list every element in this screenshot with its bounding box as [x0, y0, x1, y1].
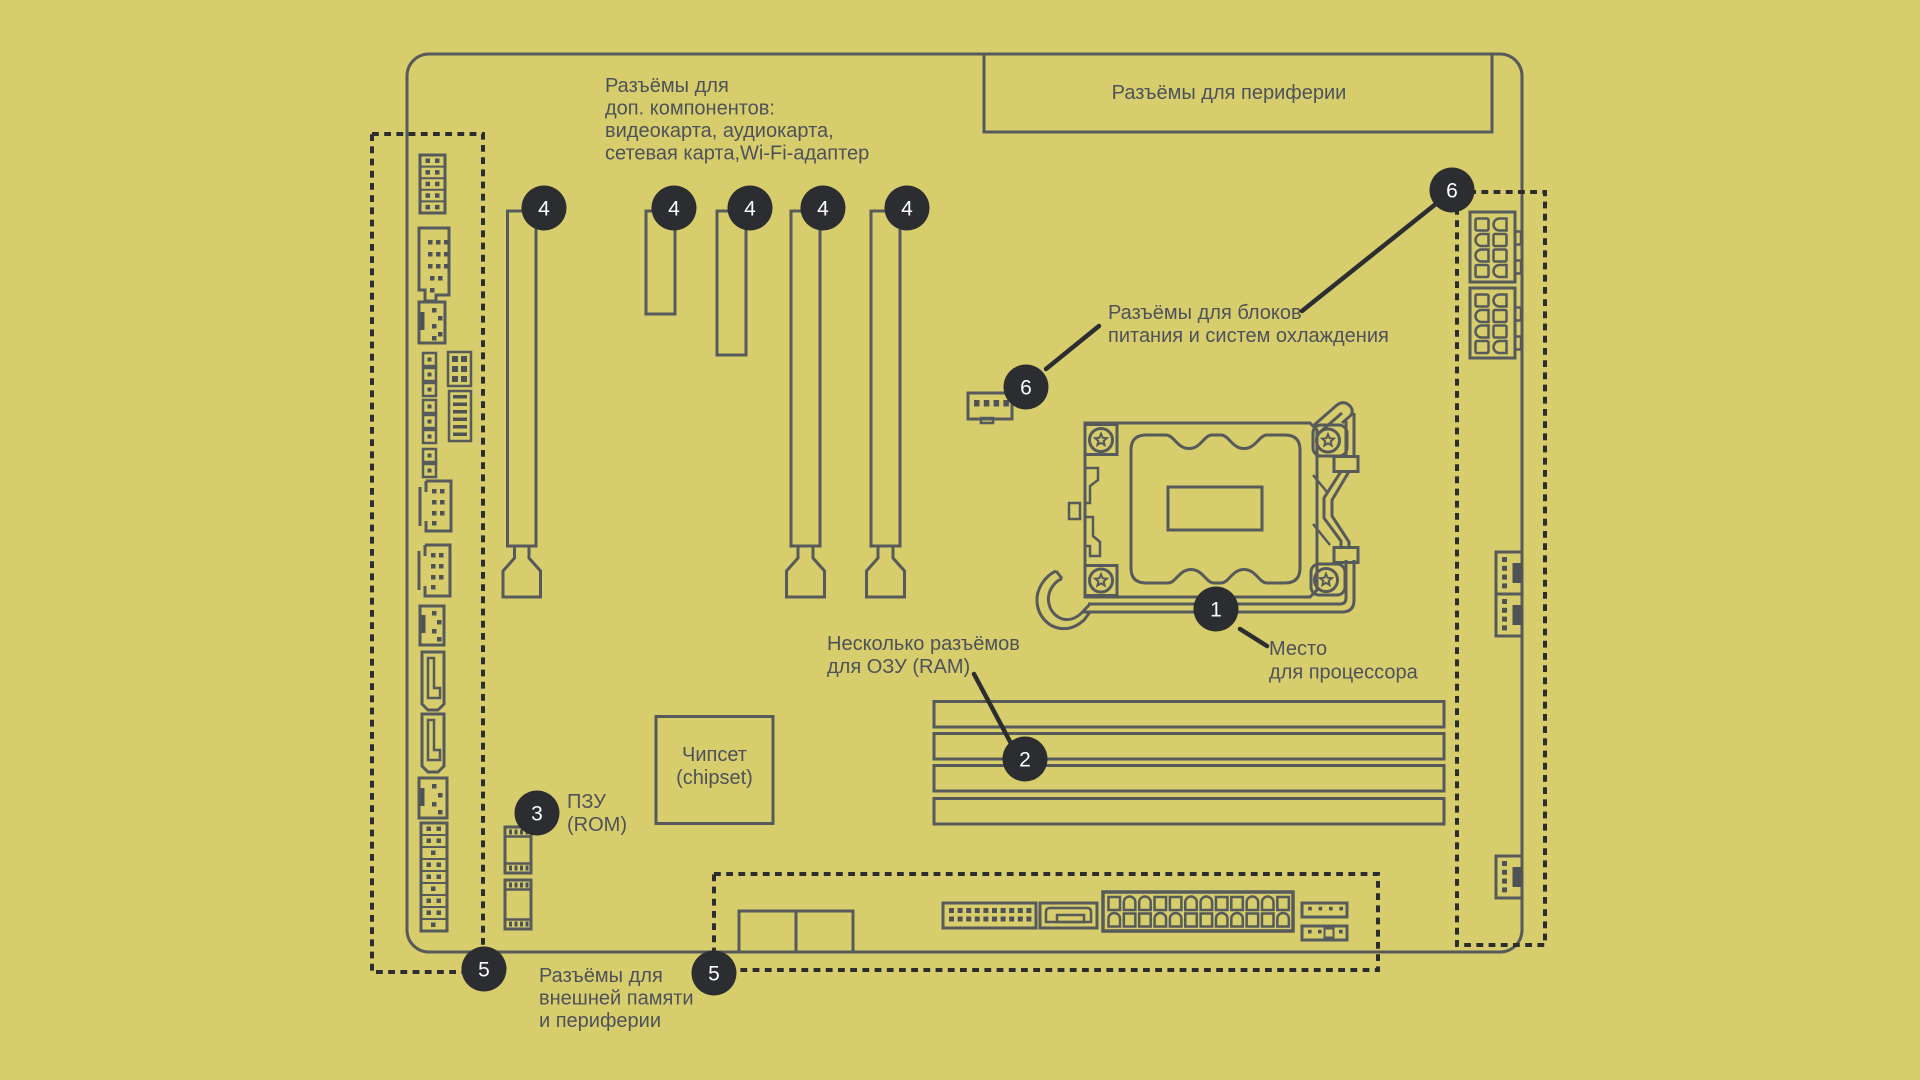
svg-text:4: 4 — [744, 198, 756, 221]
svg-text:Чипсет: Чипсет — [682, 744, 747, 766]
svg-text:Разъёмы для периферии: Разъёмы для периферии — [1112, 82, 1347, 104]
svg-text:ПЗУ: ПЗУ — [567, 791, 606, 813]
svg-text:4: 4 — [668, 198, 680, 221]
svg-text:(ROM): (ROM) — [567, 814, 627, 836]
svg-text:6: 6 — [1020, 377, 1032, 400]
svg-text:5: 5 — [478, 959, 490, 982]
svg-text:(chipset): (chipset) — [676, 767, 753, 789]
svg-text:3: 3 — [531, 803, 543, 826]
svg-text:6: 6 — [1446, 180, 1458, 203]
svg-text:4: 4 — [817, 198, 829, 221]
svg-text:5: 5 — [708, 963, 720, 986]
svg-text:4: 4 — [538, 198, 550, 221]
svg-text:2: 2 — [1019, 749, 1031, 772]
svg-text:1: 1 — [1210, 599, 1222, 622]
svg-text:4: 4 — [901, 198, 913, 221]
